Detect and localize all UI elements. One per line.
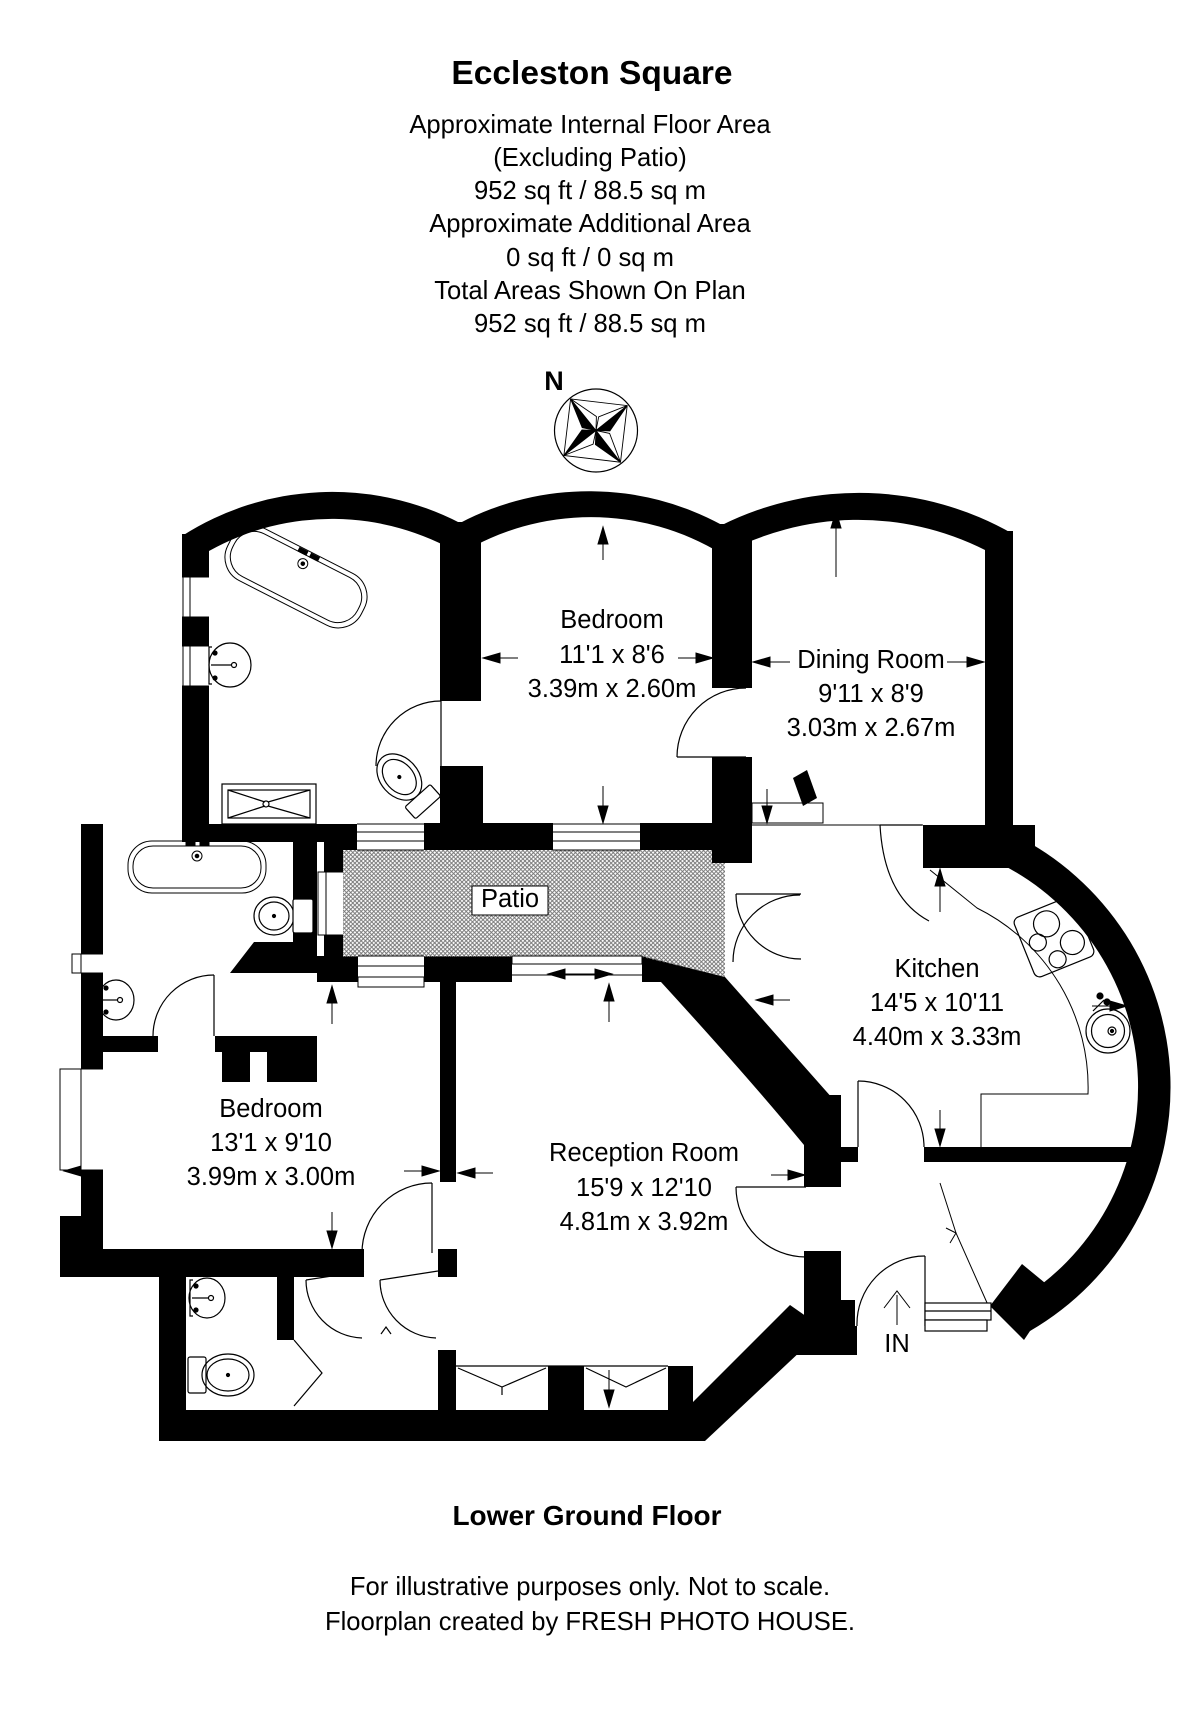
svg-text:13'1 x 9'10: 13'1 x 9'10 [210, 1129, 332, 1157]
svg-text:3.03m x 2.67m: 3.03m x 2.67m [787, 714, 956, 742]
svg-text:952 sq ft / 88.5 sq m: 952 sq ft / 88.5 sq m [474, 177, 706, 205]
svg-text:Approximate Additional Area: Approximate Additional Area [429, 210, 751, 238]
svg-text:Bedroom: Bedroom [560, 606, 663, 634]
svg-text:Eccleston Square: Eccleston Square [451, 55, 732, 92]
svg-text:4.40m x 3.33m: 4.40m x 3.33m [853, 1023, 1022, 1051]
svg-text:Approximate Internal Floor Are: Approximate Internal Floor Area [409, 111, 771, 139]
svg-text:952 sq ft / 88.5 sq m: 952 sq ft / 88.5 sq m [474, 310, 706, 338]
svg-text:11'1 x 8'6: 11'1 x 8'6 [559, 641, 665, 669]
svg-text:Lower Ground Floor: Lower Ground Floor [452, 1500, 721, 1531]
svg-text:0 sq ft / 0 sq m: 0 sq ft / 0 sq m [506, 244, 674, 272]
svg-text:Reception Room: Reception Room [549, 1139, 739, 1167]
svg-text:9'11 x 8'9: 9'11 x 8'9 [818, 680, 924, 708]
svg-text:IN: IN [884, 1330, 910, 1358]
svg-text:Patio: Patio [481, 885, 539, 913]
svg-text:For illustrative purposes only: For illustrative purposes only. Not to s… [350, 1573, 830, 1601]
svg-text:Bedroom: Bedroom [219, 1095, 322, 1123]
svg-text:N: N [544, 366, 564, 396]
svg-text:Kitchen: Kitchen [894, 955, 979, 983]
svg-text:(Excluding Patio): (Excluding Patio) [493, 144, 686, 172]
svg-text:3.39m x 2.60m: 3.39m x 2.60m [528, 675, 697, 703]
svg-text:4.81m x 3.92m: 4.81m x 3.92m [560, 1208, 729, 1236]
svg-text:14'5 x 10'11: 14'5 x 10'11 [870, 989, 1004, 1017]
svg-text:3.99m x 3.00m: 3.99m x 3.00m [187, 1163, 356, 1191]
svg-text:Floorplan created by FRESH PHO: Floorplan created by FRESH PHOTO HOUSE. [325, 1608, 855, 1636]
svg-text:Dining Room: Dining Room [797, 646, 944, 674]
svg-text:Total Areas Shown On Plan: Total Areas Shown On Plan [434, 277, 746, 305]
svg-text:15'9 x 12'10: 15'9 x 12'10 [576, 1174, 712, 1202]
